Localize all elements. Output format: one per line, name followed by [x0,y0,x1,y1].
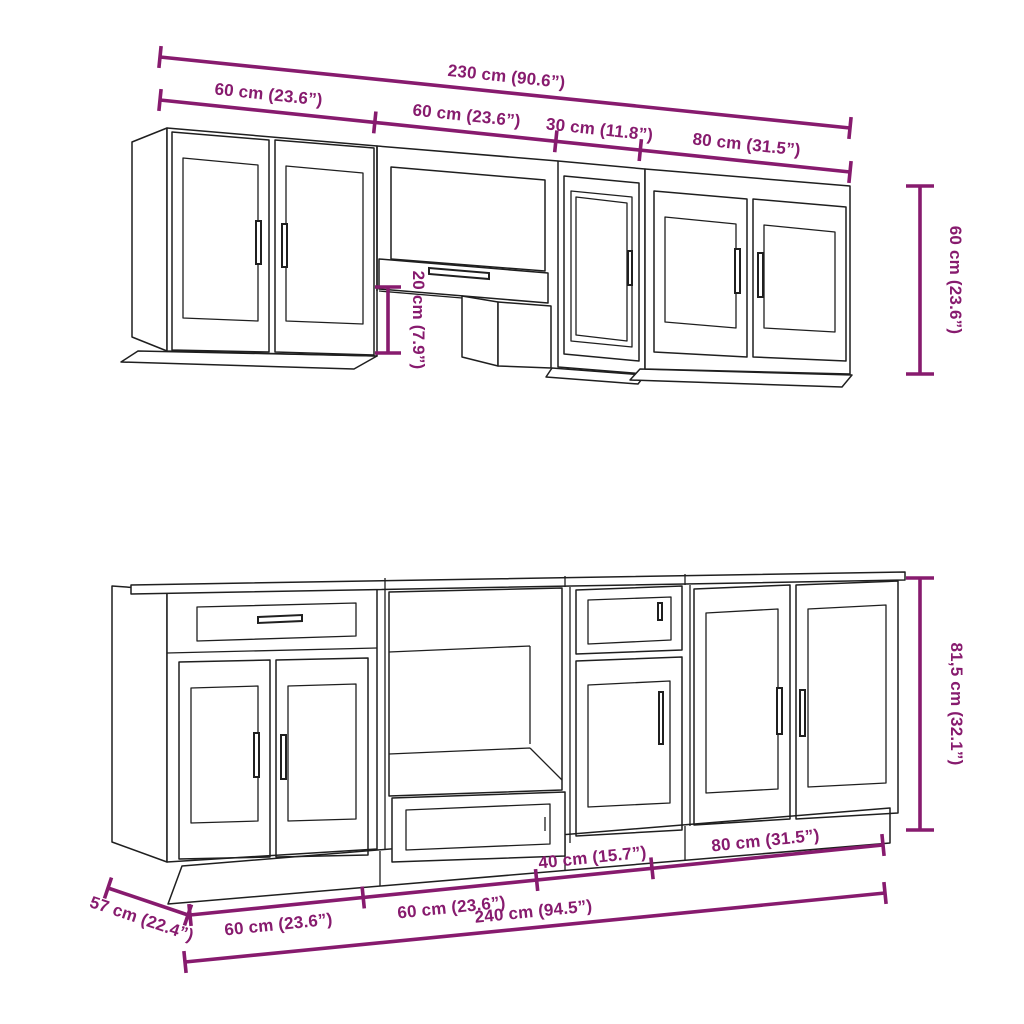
cabinet-side-panel [132,128,167,351]
door-handle [628,251,632,285]
dim-base-height: 81,5 cm (32.1”) [906,578,966,830]
dim-label-wall-height: 60 cm (23.6”) [946,226,965,334]
door-handle [800,690,805,736]
hood-opening [391,167,545,271]
wall-cabinet-60-double-door [121,128,377,369]
dim-label-wall-seg-4: 80 cm (31.5”) [692,129,802,159]
kitchen-cabinet-dimension-diagram: 230 cm (90.6”) 60 cm (23.6”) 60 cm (23.6… [0,0,1024,1024]
door-handle [758,253,763,297]
door-handle [282,224,287,267]
oven-bottom-drawer [392,792,565,862]
dim-label-wall-seg-1: 60 cm (23.6”) [214,79,324,109]
door-right-panel [808,605,886,787]
dim-wall-height: 60 cm (23.6”) [906,186,965,374]
oven-cavity [389,588,562,796]
dim-label-wall-seg-3: 30 cm (11.8”) [545,114,654,144]
wall-cabinet-80-double-door [630,169,852,387]
drawer-handle [258,615,302,623]
dim-label-hood-height: 20 cm (7.9”) [409,271,428,370]
door-handle [659,692,663,744]
cabinet-side-panel [112,586,167,862]
dim-label-base-height: 81,5 cm (32.1”) [947,642,966,765]
dim-label-base-seg-1: 60 cm (23.6”) [224,910,334,940]
diagram-canvas: 230 cm (90.6”) 60 cm (23.6”) 60 cm (23.6… [0,0,1024,1024]
wall-cabinet-30-glass [546,161,645,384]
door-left-panel [706,609,778,793]
base-cabinet-40-drawer-door [570,586,682,843]
drawer-handle [658,603,662,620]
door [576,657,682,836]
base-cabinet-60-oven [385,586,565,862]
door-panel [588,681,670,807]
door-handle [281,735,286,779]
dim-label-wall-seg-2: 60 cm (23.6”) [412,100,522,130]
door-handle [777,688,782,734]
cabinet-front [167,128,377,356]
door-handle [256,221,261,264]
wall-cabinet-row [121,128,852,387]
door-handle [254,733,259,777]
cabinet-front [167,586,377,862]
hood-box-front [498,302,551,368]
base-cabinet-60-drawer-doors [112,586,377,862]
base-cabinet-80-double-door [690,581,898,826]
hood-box-side [462,296,498,366]
door-handle [735,249,740,293]
wall-cabinet-60-range-hood [377,146,558,368]
